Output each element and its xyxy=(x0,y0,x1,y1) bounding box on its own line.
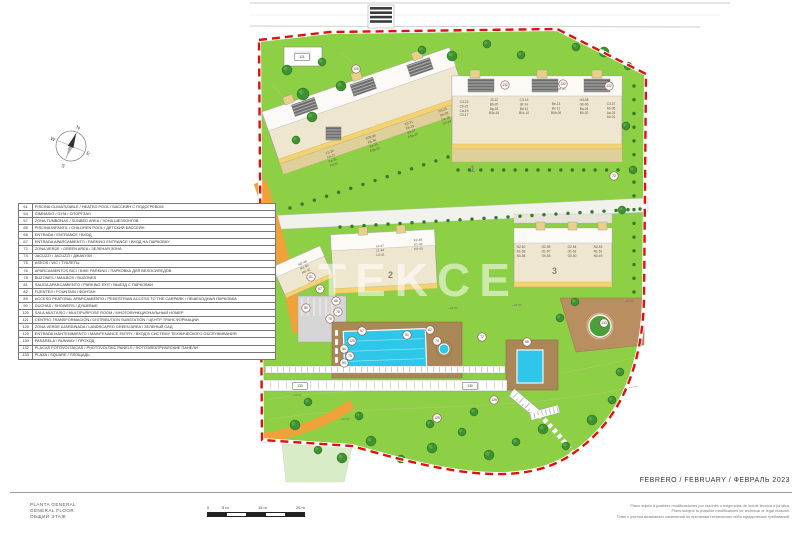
svg-text:132: 132 xyxy=(502,83,508,87)
tree-icon xyxy=(458,428,466,436)
tree-icon xyxy=(290,420,300,430)
shrub-icon xyxy=(632,290,635,293)
shrub-icon xyxy=(313,198,316,201)
shrub-icon xyxy=(513,168,516,171)
legend-ref: 89 xyxy=(19,296,33,303)
shrub-icon xyxy=(434,159,437,162)
tree-icon xyxy=(517,51,525,59)
unit-label-group: C3-23Cb-21Ca-19C0-17 xyxy=(460,100,469,117)
svg-text:K2-46K1-43K0-40: K2-46K1-43K0-40 xyxy=(414,238,423,251)
shrub-icon xyxy=(632,208,635,211)
tree-icon xyxy=(355,412,363,420)
legend-row: 78BUZONES / MAILBOX / BUZONES xyxy=(19,274,276,281)
svg-text:132: 132 xyxy=(560,82,566,86)
svg-text:129: 129 xyxy=(491,398,497,402)
svg-text:C3-23Cb-21Ca-19C0-17: C3-23Cb-21Ca-19C0-17 xyxy=(460,100,469,117)
legend-row: 130PASARELA / RUNWAY / ПРОХОД xyxy=(19,338,276,345)
legend-ref: 74 xyxy=(19,253,33,260)
svg-text:O2-59O1-57O0-55: O2-59O1-57O0-55 xyxy=(542,245,551,258)
legend-row: 121CENTRO TRANSFORMACIÓN / DISTRIBUTION … xyxy=(19,317,276,324)
shrub-icon xyxy=(602,209,605,212)
building-number: 3 xyxy=(552,266,557,276)
shrub-icon xyxy=(349,187,352,190)
svg-text:51: 51 xyxy=(405,333,409,337)
compass-e: E xyxy=(85,151,91,158)
svg-text:125: 125 xyxy=(434,416,440,420)
ref-marker: 57 xyxy=(358,327,366,335)
unit-label-group: C3-15Bf-14Bd-12B0c-10 xyxy=(519,98,529,115)
shrub-icon xyxy=(616,168,619,171)
ref-marker: 72 xyxy=(478,333,486,341)
ref-marker: 54 xyxy=(340,345,348,353)
shrub-icon xyxy=(632,180,635,183)
shrub-icon xyxy=(458,218,461,221)
ref-marker: 132 xyxy=(605,82,613,90)
compass-n: N xyxy=(75,125,81,132)
legend-label: SALA MULTIUSO / MULTIPURPOSE ROOM / МНОГ… xyxy=(33,310,276,317)
legend-label: ENTRADA APARCAMIENTO / PARKING ENTRANCE … xyxy=(33,239,276,246)
legend-label: ASEOS / WC / ТУАЛЕТЫ xyxy=(33,260,276,267)
shrub-icon xyxy=(578,211,581,214)
svg-text:81: 81 xyxy=(309,275,313,279)
shrub-icon xyxy=(632,84,635,87)
shrub-icon xyxy=(626,208,629,211)
shrub-icon xyxy=(374,223,377,226)
tree-icon xyxy=(292,136,300,144)
ref-marker: 90 xyxy=(340,359,348,367)
legend-label: ENTRADA MANTENIMIENTO / MAINTENANCE ENTR… xyxy=(33,331,276,338)
ref-marker: 72 xyxy=(610,172,618,180)
ref-marker: 65 xyxy=(523,338,531,346)
legend-row: 82FUENTES / FOUNTAIN / ФОНТАН xyxy=(19,288,276,295)
shrub-icon xyxy=(593,168,596,171)
svg-text:72: 72 xyxy=(612,174,616,178)
legend-ref: 120 xyxy=(19,310,33,317)
svg-text:N2-53N1-51N0-49: N2-53N1-51N0-49 xyxy=(594,245,603,258)
legend-ref: 75 xyxy=(19,260,33,267)
shrub-icon xyxy=(410,167,413,170)
svg-text:72: 72 xyxy=(480,335,484,339)
tree-icon xyxy=(587,415,597,425)
tree-icon xyxy=(318,58,326,66)
compass-w: W xyxy=(49,136,56,143)
tree-icon xyxy=(562,442,570,450)
legend-ref: 129 xyxy=(19,331,33,338)
shrub-icon xyxy=(632,249,635,252)
shrub-icon xyxy=(422,220,425,223)
legend-row: 132PLACAS FOTOVOLTAICAS / PHOTOVOLTAIC P… xyxy=(19,345,276,352)
shrub-icon xyxy=(325,195,328,198)
svg-text:C3-07Ab-05Aa-03A0-01: C3-07Ab-05Aa-03A0-01 xyxy=(607,102,616,119)
utility-block xyxy=(326,127,341,140)
compass-s: S xyxy=(60,163,66,170)
shrub-icon xyxy=(632,235,635,238)
watermark: TEKCE xyxy=(318,254,519,306)
top-road xyxy=(250,3,730,28)
legend-label: BUZONES / MAILBOX / BUZONES xyxy=(33,274,276,281)
shrub-icon xyxy=(446,155,449,158)
elevation-label: +40.50 xyxy=(448,306,458,310)
svg-text:54: 54 xyxy=(342,347,346,351)
legend-ref: 67 xyxy=(19,239,33,246)
shrub-icon xyxy=(350,225,353,228)
heated-pool xyxy=(343,329,426,372)
legend-label: PISCINA INFANTIL / CHILDREN POOL / ДЕТСК… xyxy=(33,225,276,232)
legend-table: 51PISCINA CLIMATIZABLE / HEATED POOL / Б… xyxy=(18,203,276,360)
legend-label: ZONA VERDE / GREEN AREA / ЗЕЛЕНАЯ ЗОНА xyxy=(33,246,276,253)
shrub-icon xyxy=(300,202,303,205)
svg-text:57: 57 xyxy=(360,329,364,333)
legend-row: 67ENTRADA APARCAMIENTO / PARKING ENTRANC… xyxy=(19,239,276,246)
shrub-icon xyxy=(530,214,533,217)
plaza-tree-icon xyxy=(589,315,611,337)
legend-row: 81SALIDA APARCAMIENTO / PARKING EXIT / В… xyxy=(19,281,276,288)
date-label: FEBRERO / FEBRUARY / ФЕВРАЛЬ 2023 xyxy=(640,477,790,484)
tree-icon xyxy=(470,408,478,416)
shrub-icon xyxy=(632,263,635,266)
svg-text:130: 130 xyxy=(467,384,473,388)
unit-label-group: O2-54O1-52O0-50 xyxy=(568,245,577,258)
legend-label: JACUZZI / JACUZZI / ДЖАКУЗИ xyxy=(33,253,276,260)
shrub-icon xyxy=(494,216,497,219)
legend-ref: 66 xyxy=(19,232,33,239)
jacuzzi-pool xyxy=(439,344,449,354)
shrub-icon xyxy=(559,168,562,171)
svg-text:H3-08Gb-06Ba-04B0-02: H3-08Gb-06Ba-04B0-02 xyxy=(580,98,589,115)
legend-label: SALIDA APARCAMIENTO / PARKING EXIT / ВЫЕ… xyxy=(33,281,276,288)
elevation-label: +40.50 xyxy=(340,417,350,421)
drawing-sheet: C3-23Cb-21Ca-19C0-17J3-22Bb-20Bg-18B0a-1… xyxy=(0,0,800,533)
unit-label-group: Be-13Bc-11B0b-09 xyxy=(551,102,562,115)
legend-label: FUENTES / FOUNTAIN / ФОНТАН xyxy=(33,288,276,295)
legend-row: 74JACUZZI / JACUZZI / ДЖАКУЗИ xyxy=(19,253,276,260)
legend-label: ZONA VERDE AJARDINADA / LANDSCAPED GREEN… xyxy=(33,324,276,331)
tree-icon xyxy=(616,368,624,376)
legend-row: 125ZONA VERDE AJARDINADA / LANDSCAPED GR… xyxy=(19,324,276,331)
legend-ref: 130 xyxy=(19,338,33,345)
svg-text:Be-13Bc-11B0b-09: Be-13Bc-11B0b-09 xyxy=(551,102,562,115)
shrub-icon xyxy=(422,163,425,166)
legend-ref: 81 xyxy=(19,281,33,288)
legend-ref: 78 xyxy=(19,274,33,281)
scale-5: 5 m xyxy=(222,505,229,510)
legend-label: APARCAMIENTOS BICI / BIKE PARKING / ПАРК… xyxy=(33,267,276,274)
legend-row: 76APARCAMIENTOS BICI / BIKE PARKING / ПА… xyxy=(19,267,276,274)
tree-icon xyxy=(304,398,312,406)
ref-marker: 132 xyxy=(501,81,509,89)
shrub-icon xyxy=(614,209,617,212)
elevation-label: +46.50 xyxy=(624,299,634,303)
tree-icon xyxy=(629,166,637,174)
legend-row: 57ZONA TUMBONAS / SUNBED AREA / ЗОНА ШЕЗ… xyxy=(19,218,276,225)
legend-ref: 72 xyxy=(19,246,33,253)
legend-ref: 82 xyxy=(19,288,33,295)
legend-row: 120SALA MULTIUSO / MULTIPURPOSE ROOM / М… xyxy=(19,310,276,317)
svg-text:74: 74 xyxy=(435,339,439,343)
legend-ref: 132 xyxy=(19,345,33,352)
svg-text:133: 133 xyxy=(601,321,607,325)
legend-label: ENTRADA / ENTRANCE / ВХОД xyxy=(33,232,276,239)
shrub-icon xyxy=(410,221,413,224)
shrub-icon xyxy=(605,168,608,171)
legend-row: 90DUCHAS / SHOWERS / ДУШЕВЫЕ xyxy=(19,303,276,310)
shrub-icon xyxy=(566,212,569,215)
ref-marker: 78 xyxy=(334,308,342,316)
ref-marker: 130 xyxy=(293,382,308,389)
tree-icon xyxy=(622,122,630,130)
tree-icon xyxy=(483,40,491,48)
legend-ref: 54 xyxy=(19,211,33,218)
ref-marker: 132 xyxy=(559,80,567,88)
shrub-icon xyxy=(632,112,635,115)
shrub-icon xyxy=(386,222,389,225)
tree-icon xyxy=(538,424,548,434)
shrub-icon xyxy=(456,168,459,171)
tree-icon xyxy=(336,81,346,91)
shrub-icon xyxy=(632,277,635,280)
tree-icon xyxy=(608,396,616,404)
disclaimer-ru: План с учетом возможных изменений по при… xyxy=(617,514,790,519)
shrub-icon xyxy=(361,183,364,186)
shrub-icon xyxy=(518,215,521,218)
legend-label: CENTRO TRANSFORMACIÓN / DISTRIBUTION SUB… xyxy=(33,317,276,324)
ref-marker: 82 xyxy=(426,326,434,334)
children-pool-area xyxy=(506,340,558,390)
ref-marker: 74 xyxy=(433,337,441,345)
unit-label-group: K2-46K1-43K0-40 xyxy=(414,238,423,251)
legend-row: 75ASEOS / WC / ТУАЛЕТЫ xyxy=(19,260,276,267)
title-ru: ОБЩИЙ ЭТАЖ xyxy=(30,514,76,520)
legend-label: PLAZA / SQUARE / ПЛОЩАДЬ xyxy=(33,352,276,359)
shrub-icon xyxy=(632,194,635,197)
unit-label-group: J3-22Bb-20Bg-18B0a-16 xyxy=(489,98,500,115)
shrub-icon xyxy=(373,179,376,182)
svg-text:82: 82 xyxy=(428,328,432,332)
legend-ref: 65 xyxy=(19,225,33,232)
shrub-icon xyxy=(362,224,365,227)
legend-ref: 121 xyxy=(19,317,33,324)
scale-15: 15 m xyxy=(258,505,267,510)
shrub-icon xyxy=(398,171,401,174)
shrub-icon xyxy=(482,217,485,220)
shrub-icon xyxy=(554,212,557,215)
shrub-icon xyxy=(632,126,635,129)
shrub-icon xyxy=(288,206,291,209)
svg-text:65: 65 xyxy=(525,340,529,344)
ref-marker: 133 xyxy=(600,319,608,327)
children-pool xyxy=(517,350,543,383)
scale-bar-segments xyxy=(207,512,305,517)
building-1 xyxy=(452,70,622,162)
ref-marker: 81 xyxy=(307,273,315,281)
legend-label: DUCHAS / SHOWERS / ДУШЕВЫЕ xyxy=(33,303,276,310)
legend-row: 54GIMNASIO / GYM / СПОРТЗАЛ xyxy=(19,211,276,218)
shrub-icon xyxy=(548,168,551,171)
legend-row: 133PLAZA / SQUARE / ПЛОЩАДЬ xyxy=(19,352,276,359)
ref-marker: 120 xyxy=(348,337,356,345)
shrub-icon xyxy=(582,168,585,171)
footer-divider xyxy=(10,492,792,493)
svg-text:76: 76 xyxy=(328,317,332,321)
tree-icon xyxy=(307,112,317,122)
legend-row: 65PISCINA INFANTIL / CHILDREN POOL / ДЕТ… xyxy=(19,225,276,232)
ref-marker: 75 xyxy=(346,352,354,360)
shrub-icon xyxy=(479,168,482,171)
shrub-icon xyxy=(590,210,593,213)
legend-row: 89ACCESO PEATONAL APARCAMIENTO / PEDESTR… xyxy=(19,296,276,303)
shrub-icon xyxy=(491,168,494,171)
ref-marker: 89 xyxy=(302,304,310,312)
ref-marker: 129 xyxy=(490,396,498,404)
svg-text:90: 90 xyxy=(342,361,346,365)
tree-icon xyxy=(427,443,437,453)
tree-icon xyxy=(314,446,322,454)
legend-label: PASARELA / RUNWAY / ПРОХОД xyxy=(33,338,276,345)
legend-label: GIMNASIO / GYM / СПОРТЗАЛ xyxy=(33,211,276,218)
shrub-icon xyxy=(470,217,473,220)
legend-ref: 51 xyxy=(19,204,33,211)
shrub-icon xyxy=(338,225,341,228)
legend-row: 51PISCINA CLIMATIZABLE / HEATED POOL / Б… xyxy=(19,204,276,211)
unit-label-group: N2-53N1-51N0-49 xyxy=(594,245,603,258)
shrub-icon xyxy=(525,168,528,171)
shrub-icon xyxy=(337,191,340,194)
tree-icon xyxy=(512,438,520,446)
legend-ref: 57 xyxy=(19,218,33,225)
svg-text:75: 75 xyxy=(348,354,352,358)
compass-icon: N E S W xyxy=(41,117,98,177)
tree-icon xyxy=(618,206,626,214)
tree-icon xyxy=(484,450,494,460)
svg-text:J3-22Bb-20Bg-18B0a-16: J3-22Bb-20Bg-18B0a-16 xyxy=(489,98,500,115)
legend-ref: 90 xyxy=(19,303,33,310)
ref-marker: 51 xyxy=(403,331,411,339)
ref-marker: 130 xyxy=(463,382,478,389)
tree-icon xyxy=(571,298,579,306)
unit-label-group: O2-59O1-57O0-55 xyxy=(542,245,551,258)
shrub-icon xyxy=(506,215,509,218)
legend-label: PISCINA CLIMATIZABLE / HEATED POOL / БАС… xyxy=(33,204,276,211)
legend-row: 129ENTRADA MANTENIMIENTO / MAINTENANCE E… xyxy=(19,331,276,338)
legend-label: ACCESO PEATONAL APARCAMIENTO / PEDESTRIA… xyxy=(33,296,276,303)
tree-icon xyxy=(366,436,376,446)
tree-icon xyxy=(426,420,434,428)
legend-ref: 133 xyxy=(19,352,33,359)
scale-25: 25 m xyxy=(296,505,305,510)
shrub-icon xyxy=(542,213,545,216)
shrub-icon xyxy=(632,98,635,101)
title-block: PLANTA GENERAL GENERAL FLOOR ОБЩИЙ ЭТАЖ xyxy=(30,502,76,520)
shrub-icon xyxy=(571,168,574,171)
shrub-icon xyxy=(638,207,641,210)
ref-marker: 121 xyxy=(295,53,310,60)
svg-text:125: 125 xyxy=(353,67,359,71)
legend-ref: 125 xyxy=(19,324,33,331)
svg-text:121: 121 xyxy=(299,55,305,59)
scale-0: 0 xyxy=(207,505,209,510)
legend-ref: 76 xyxy=(19,267,33,274)
tree-icon xyxy=(297,88,309,100)
ref-marker: 125 xyxy=(352,65,360,73)
shrub-icon xyxy=(446,219,449,222)
ref-marker: 125 xyxy=(433,414,441,422)
zebra-crossing-icon xyxy=(368,5,394,28)
shrub-icon xyxy=(434,220,437,223)
disclaimer: Plano sujeto a posibles modificaciones p… xyxy=(617,503,790,519)
svg-text:132: 132 xyxy=(606,84,612,88)
parking-strip xyxy=(514,214,612,223)
unit-label-group: H3-08Gb-06Ba-04B0-02 xyxy=(580,98,589,115)
svg-text:O2-54O1-52O0-50: O2-54O1-52O0-50 xyxy=(568,245,577,258)
svg-text:78: 78 xyxy=(336,310,340,314)
shrub-icon xyxy=(398,222,401,225)
tree-icon xyxy=(418,46,426,54)
tree-icon xyxy=(556,314,564,322)
legend-row: 66ENTRADA / ENTRANCE / ВХОД xyxy=(19,232,276,239)
tree-icon xyxy=(447,51,457,61)
svg-text:130: 130 xyxy=(297,384,303,388)
scale-bar: 0 5 m 15 m 25 m xyxy=(207,505,305,521)
legend-label: PLACAS FOTOVOLTAICAS / PHOTOVOLTAIC PANE… xyxy=(33,345,276,352)
svg-text:C3-15Bf-14Bd-12B0c-10: C3-15Bf-14Bd-12B0c-10 xyxy=(519,98,529,115)
tree-icon xyxy=(337,453,347,463)
building-number: 1 xyxy=(470,164,475,174)
shrub-icon xyxy=(632,222,635,225)
ref-marker: 76 xyxy=(326,315,334,323)
shrub-icon xyxy=(386,175,389,178)
legend-label: ZONA TUMBONAS / SUNBED AREA / ЗОНА ШЕЗЛО… xyxy=(33,218,276,225)
tree-icon xyxy=(572,43,580,51)
shrub-icon xyxy=(632,153,635,156)
shrub-icon xyxy=(536,168,539,171)
shrub-icon xyxy=(632,139,635,142)
svg-text:120: 120 xyxy=(349,339,355,343)
shrub-icon xyxy=(502,168,505,171)
svg-text:89: 89 xyxy=(304,306,308,310)
legend-row: 72ZONA VERDE / GREEN AREA / ЗЕЛЕНАЯ ЗОНА xyxy=(19,246,276,253)
unit-label-group: C3-07Ab-05Aa-03A0-01 xyxy=(607,102,616,119)
elevation-label: +44.50 xyxy=(292,393,302,397)
tree-icon xyxy=(282,65,292,75)
